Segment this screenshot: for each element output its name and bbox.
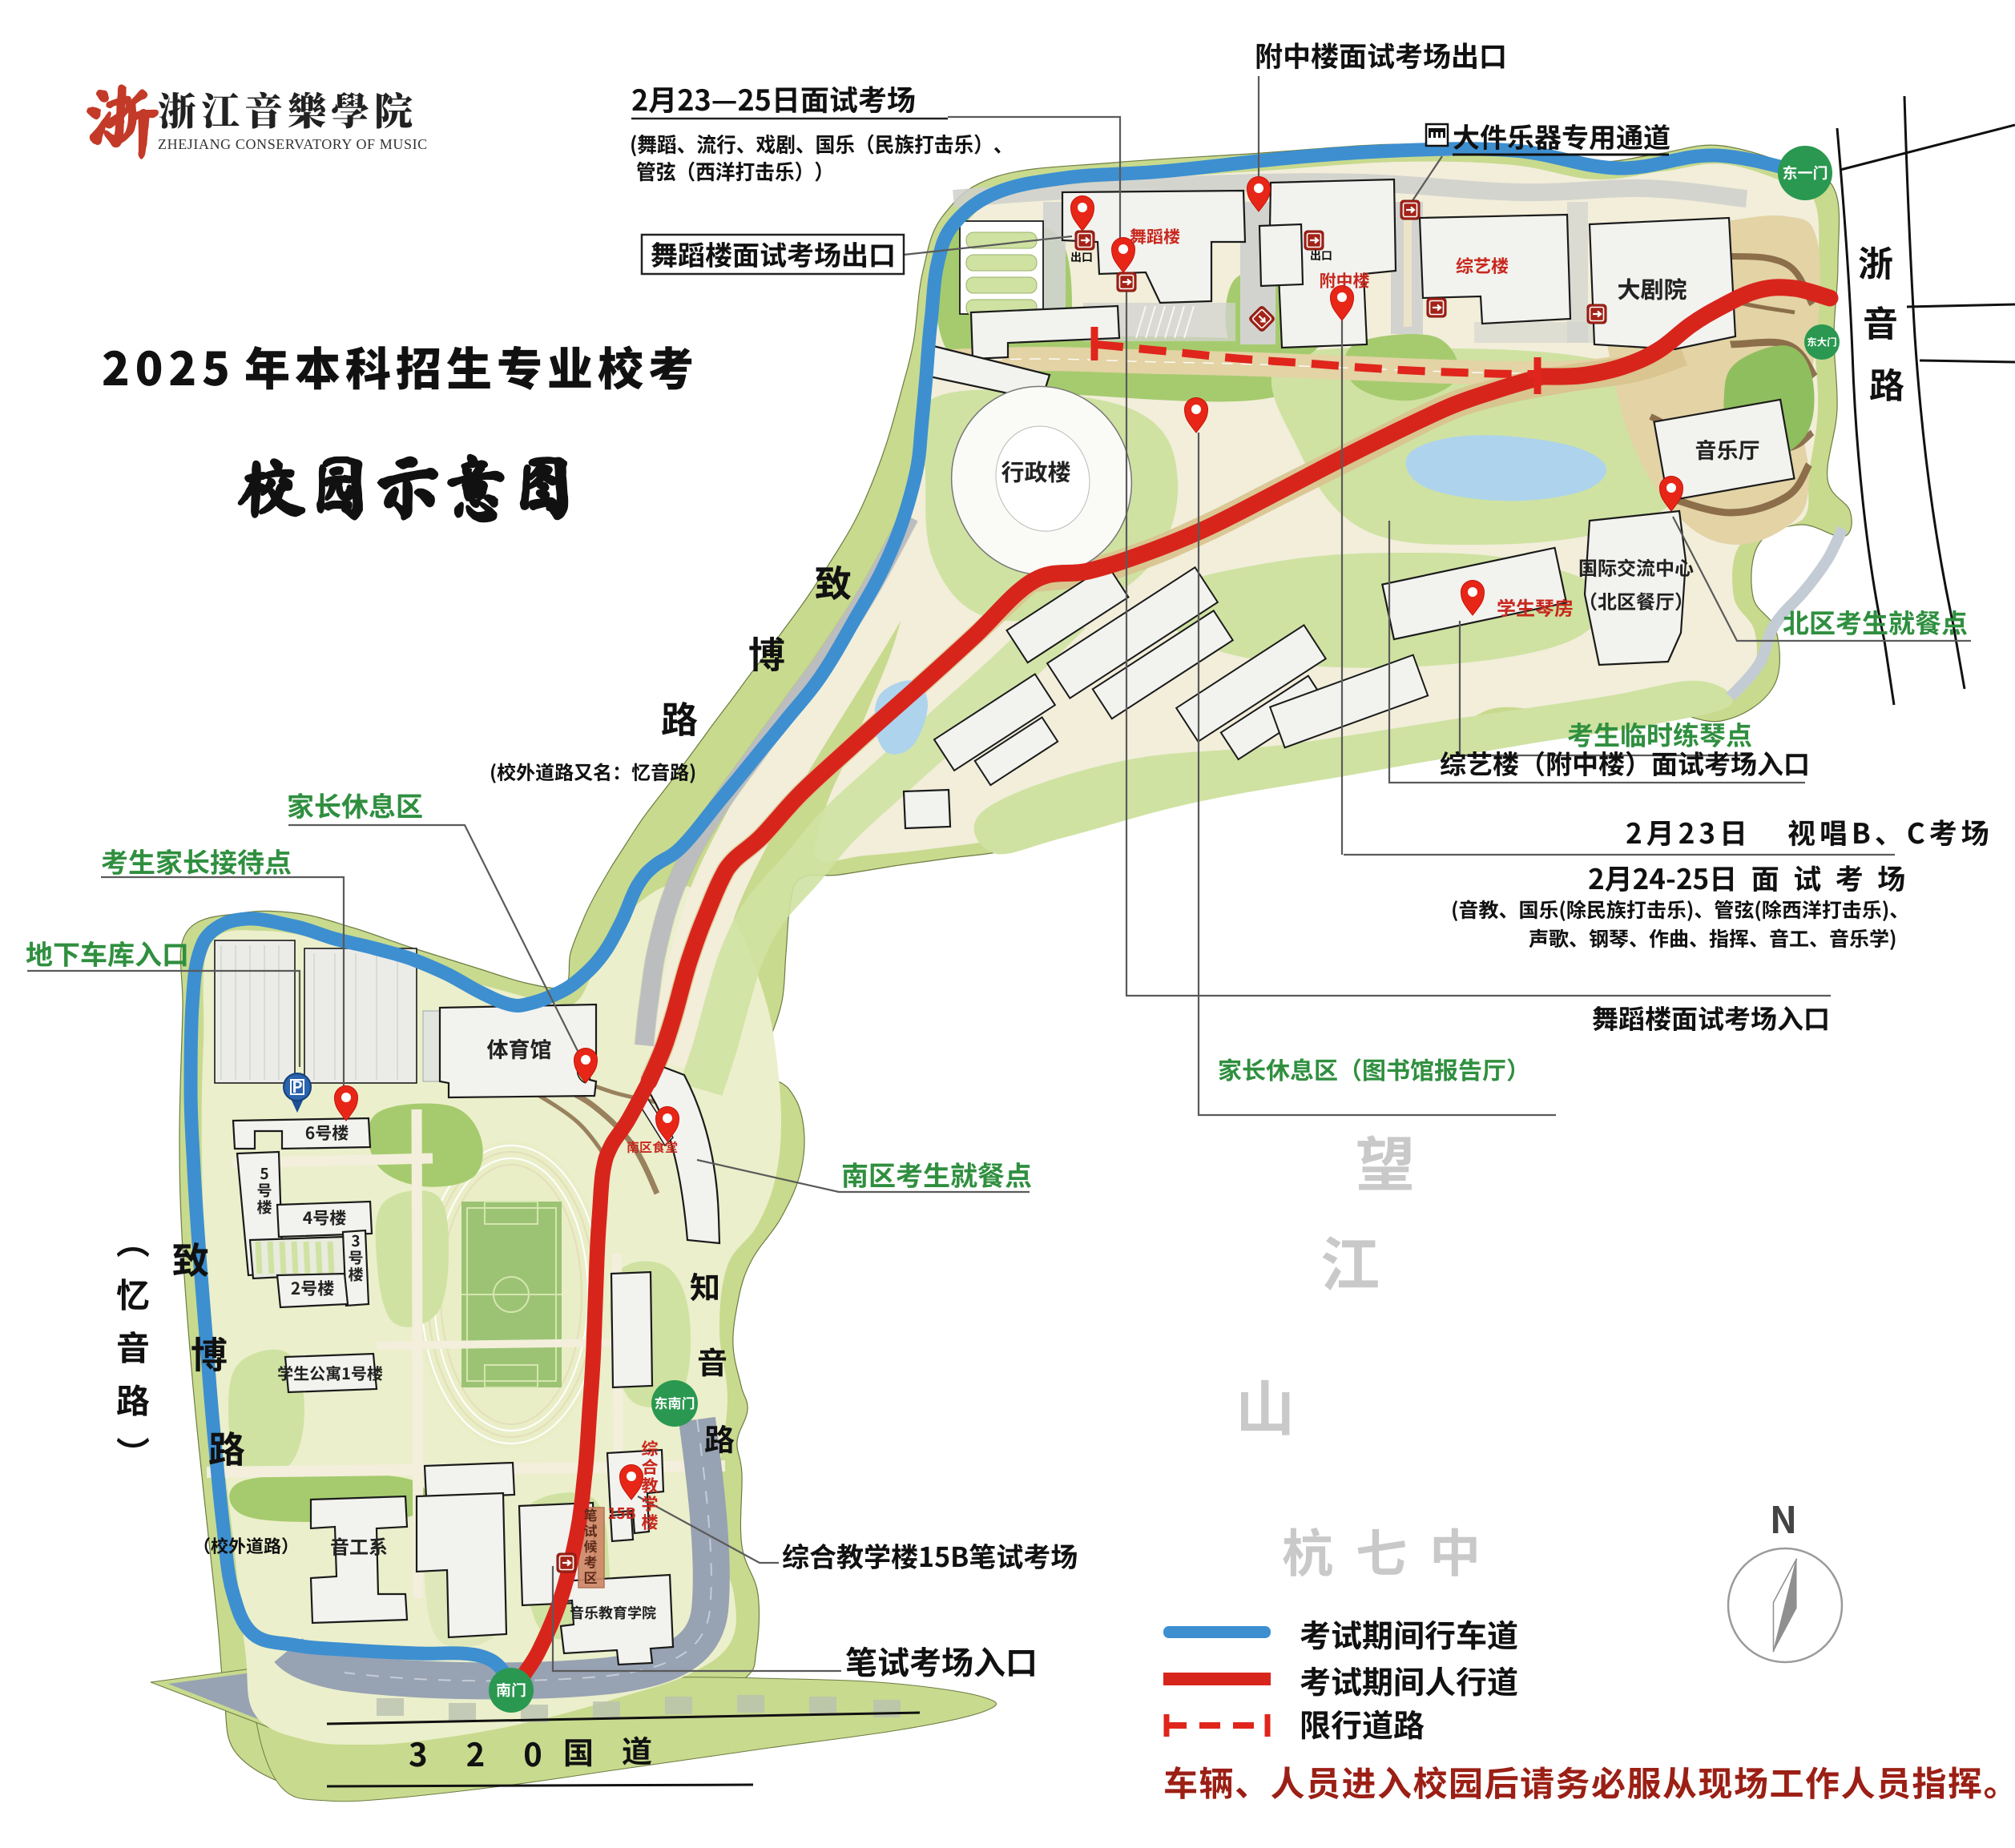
svg-text:ZHEJIANG CONSERVATORY OF MUSIC: ZHEJIANG CONSERVATORY OF MUSIC (158, 136, 428, 152)
